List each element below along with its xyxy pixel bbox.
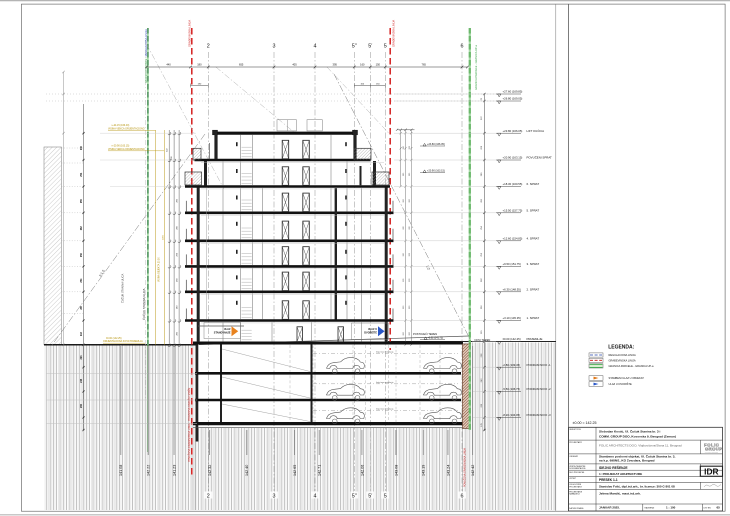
svg-text:VISINA OBJEKTA 20.90: VISINA OBJEKTA 20.90 xyxy=(158,257,161,282)
svg-text:3. SPRAT: 3. SPRAT xyxy=(527,262,540,266)
svg-text:282: 282 xyxy=(80,226,83,231)
svg-text:142.42: 142.42 xyxy=(471,465,475,476)
svg-text:5′′: 5′′ xyxy=(352,493,357,499)
svg-text:±0.00 = 142.25: ±0.00 = 142.25 xyxy=(573,421,597,425)
svg-text:GRANICA PARCELE - GRANICA UP-a: GRANICA PARCELE - GRANICA UP-a xyxy=(609,364,654,368)
svg-text:NOVI TEREN: NOVI TEREN xyxy=(475,338,491,342)
svg-text:Stanislav Folić, dipl.inž.arh.: Stanislav Folić, dipl.inž.arh., br. lice… xyxy=(599,484,675,488)
svg-text:1 : 100: 1 : 100 xyxy=(666,506,676,510)
svg-text:4: 4 xyxy=(314,493,317,499)
svg-text:+6.30 (148.55): +6.30 (148.55) xyxy=(503,288,521,292)
svg-text:65: 65 xyxy=(717,506,721,510)
svg-text:180: 180 xyxy=(197,63,202,67)
svg-text:142.65: 142.65 xyxy=(293,465,297,476)
svg-text:REGULACIONA LINIJA: REGULACIONA LINIJA xyxy=(609,353,637,357)
svg-text:255: 255 xyxy=(80,198,83,203)
svg-text:LIST BR.: LIST BR. xyxy=(704,507,712,509)
svg-text:STAMBENI ULAZ U OBJEKAT: STAMBENI ULAZ U OBJEKAT xyxy=(609,376,645,380)
svg-text:POVUČENA GRAĐEVINSKA LINIJA -: POVUČENA GRAĐEVINSKA LINIJA - PODZEMNA G… xyxy=(188,387,191,462)
svg-text:LIFT KUĆICA: LIFT KUĆICA xyxy=(527,128,545,133)
svg-text:RAZMERA:: RAZMERA: xyxy=(645,506,655,509)
svg-text:150: 150 xyxy=(376,63,381,67)
svg-text:142.32: 142.32 xyxy=(208,465,212,476)
svg-text:GROUP: GROUP xyxy=(705,447,722,452)
svg-text:254: 254 xyxy=(80,278,83,283)
svg-text:+3.10 (145.35): +3.10 (145.35) xyxy=(503,316,521,320)
svg-text:5: 5 xyxy=(384,44,387,50)
svg-text:143.08: 143.08 xyxy=(394,465,398,476)
svg-text:OBJEKAT:: OBJEKAT: xyxy=(569,455,578,458)
svg-text:Slobodan Kostić, Ul. Čučuk Sta: Slobodan Kostić, Ul. Čučuk Stanina br. 3… xyxy=(599,429,661,434)
svg-text:linija trase instalacija: linija trase instalacija xyxy=(376,408,394,411)
svg-text:PRIZEMLJE: PRIZEMLJE xyxy=(527,337,543,341)
svg-text:VISINA VENCA ORIJENTACIONO: VISINA VENCA ORIJENTACIONO xyxy=(108,127,145,130)
svg-text:linija trase instalacija: linija trase instalacija xyxy=(376,351,394,354)
svg-text:280: 280 xyxy=(80,145,83,150)
svg-text:2: 2 xyxy=(207,44,210,50)
svg-text:142.40: 142.40 xyxy=(245,465,249,476)
svg-text:COMM. GROUP DOO, Kosovska 9, B: COMM. GROUP DOO, Kosovska 9, Beograd (Ze… xyxy=(599,434,676,438)
svg-text:243: 243 xyxy=(80,331,83,336)
svg-text:linija trase instalacija: linija trase instalacija xyxy=(376,381,394,384)
svg-text:405: 405 xyxy=(292,63,297,67)
svg-text:254: 254 xyxy=(80,172,83,177)
svg-text:GRANICA PARCELE - REGULACIONA: GRANICA PARCELE - REGULACIONA LINIJA xyxy=(144,29,148,83)
svg-text:VISINA VENCA ORIJENTACIONO: VISINA VENCA ORIJENTACIONO xyxy=(108,148,145,151)
svg-text:POVUČENA GRAĐEVINSKA LINIJA: POVUČENA GRAĐEVINSKA LINIJA xyxy=(463,448,466,487)
svg-text:+23.80 (166.05): +23.80 (166.05) xyxy=(427,143,445,146)
svg-text:+20.90 (163.15): +20.90 (163.15) xyxy=(503,156,523,160)
svg-text:GRAĐEVINSKA LINIJA: GRAĐEVINSKA LINIJA xyxy=(187,20,191,47)
svg-text:2. SPRAT: 2. SPRAT xyxy=(527,288,540,292)
svg-text:PROJEKTANT:: PROJEKTANT: xyxy=(569,486,582,489)
svg-text:PODRUM NIVO -2: PODRUM NIVO -2 xyxy=(527,387,551,391)
svg-text:1: PROJEKAT ARHITEKTURE: 1: PROJEKAT ARHITEKTURE xyxy=(599,472,642,476)
svg-text:3: 3 xyxy=(273,493,276,499)
svg-text:2: 2 xyxy=(207,493,210,499)
svg-text:5′′: 5′′ xyxy=(352,44,357,50)
svg-text:5: 5 xyxy=(384,493,387,499)
svg-text:395: 395 xyxy=(333,63,338,67)
svg-text:143.19: 143.19 xyxy=(422,465,426,476)
svg-text:+12.60 (154.85): +12.60 (154.85) xyxy=(503,237,523,241)
svg-text:5′: 5′ xyxy=(368,44,372,50)
svg-text:POVUČENI SPRAT: POVUČENI SPRAT xyxy=(527,155,553,160)
svg-text:+20.90 (163.15): +20.90 (163.15) xyxy=(427,169,445,172)
svg-text:+15.50 (157.75): +15.50 (157.75) xyxy=(503,209,523,213)
svg-text:-8.20 (134.05): -8.20 (134.05) xyxy=(503,413,521,417)
svg-text:PODRUM NIVO -1: PODRUM NIVO -1 xyxy=(527,363,551,367)
svg-text:142.71: 142.71 xyxy=(318,465,322,476)
svg-text:LEGENDA:: LEGENDA: xyxy=(608,345,634,351)
svg-text:-0.52 (141.73): -0.52 (141.73) xyxy=(428,336,443,339)
svg-text:655: 655 xyxy=(239,63,244,67)
svg-text:DATUM IZRADE:: DATUM IZRADE: xyxy=(569,507,584,510)
svg-text:4: 4 xyxy=(314,44,317,50)
svg-text:+23.80 (166.05): +23.80 (166.05) xyxy=(503,129,523,133)
svg-text:260: 260 xyxy=(80,403,83,408)
svg-text:GRAĐEVINSKA LINIJA: GRAĐEVINSKA LINIJA xyxy=(609,358,636,362)
svg-text:-5.50 (136.75): -5.50 (136.75) xyxy=(503,387,521,391)
svg-text:287: 287 xyxy=(80,305,83,310)
svg-text:141.23: 141.23 xyxy=(172,465,176,476)
svg-text:DVORIŠTE: DVORIŠTE xyxy=(364,331,377,334)
svg-text:765: 765 xyxy=(422,63,427,67)
svg-text:na k.p. 698N/1, KO Zvezdara, B: na k.p. 698N/1, KO Zvezdara, Beograd xyxy=(599,459,655,463)
svg-text:5′: 5′ xyxy=(368,493,372,499)
svg-text:6. SPRAT: 6. SPRAT xyxy=(527,182,540,186)
svg-text:GRAĐEVINSKA LINIJA: GRAĐEVINSKA LINIJA xyxy=(392,20,396,47)
svg-text:STANOVANJE: STANOVANJE xyxy=(214,331,231,334)
svg-text:PODRUM NIVO -3: PODRUM NIVO -3 xyxy=(527,413,551,417)
svg-text:IDEJNO REŠENJE: IDEJNO REŠENJE xyxy=(599,465,628,470)
svg-text:Jelena Mandić, mast.inž.arh.: Jelena Mandić, mast.inž.arh. xyxy=(599,492,641,496)
svg-text:223: 223 xyxy=(80,355,83,360)
svg-text:-2.80 (139.45): -2.80 (139.45) xyxy=(503,363,521,367)
svg-text:Stambeno poslovni objekat, Ul.: Stambeno poslovni objekat, Ul. Čučuk Sta… xyxy=(599,453,675,458)
svg-text:ORIJENTACIONA KOTA PRIZEMLJA: ORIJENTACIONA KOTA PRIZEMLJA xyxy=(103,340,143,343)
svg-text:DOKUMENTACIJE:: DOKUMENTACIJE: xyxy=(569,467,586,470)
svg-text:142.22: 142.22 xyxy=(147,465,151,476)
svg-text:±0.00 (142.25): ±0.00 (142.25) xyxy=(503,337,521,341)
svg-text:+27.60 (169.85): +27.60 (169.85) xyxy=(503,90,523,94)
svg-text:141.08: 141.08 xyxy=(119,465,123,476)
svg-text:IDR: IDR xyxy=(704,467,718,477)
svg-text:JANUAR 2025.: JANUAR 2025. xyxy=(599,506,620,510)
svg-text:+18.30 (160.55): +18.30 (160.55) xyxy=(503,182,523,186)
svg-text:FOLIC ARCHITECTS DOO, Vlajkovi: FOLIC ARCHITECTS DOO, Vlajkovićeva/Slana… xyxy=(599,444,682,448)
svg-text:160: 160 xyxy=(360,63,365,67)
svg-text:DEO PROJEKTA:: DEO PROJEKTA: xyxy=(569,471,584,474)
svg-text:6: 6 xyxy=(461,493,464,499)
svg-text:PRESEK 1-1: PRESEK 1-1 xyxy=(599,478,618,482)
svg-text:245: 245 xyxy=(80,378,83,383)
svg-text:1. SPRAT: 1. SPRAT xyxy=(527,316,540,320)
svg-text:CRTEŽ:: CRTEŽ: xyxy=(569,477,576,480)
svg-text:PROJEKTANT:: PROJEKTANT: xyxy=(569,441,582,444)
svg-text:SARADNICI:: SARADNICI: xyxy=(569,493,580,496)
svg-text:5. SPRAT: 5. SPRAT xyxy=(527,209,540,213)
svg-text:3: 3 xyxy=(273,44,276,50)
svg-text:142.06: 142.06 xyxy=(360,465,364,476)
svg-text:ČUČUK STANINA ULICA: ČUČUK STANINA ULICA xyxy=(141,288,146,320)
svg-text:256: 256 xyxy=(80,252,83,257)
svg-text:4. SPRAT: 4. SPRAT xyxy=(527,237,540,241)
svg-text:6: 6 xyxy=(461,44,464,50)
svg-text:+9.50 (151.75): +9.50 (151.75) xyxy=(503,262,521,266)
svg-text:440: 440 xyxy=(166,63,171,67)
svg-text:+26.80 (169.05): +26.80 (169.05) xyxy=(503,97,523,101)
svg-text:GRANICA PARCELE - GRANICA UP-a: GRANICA PARCELE - GRANICA UP-a xyxy=(474,45,478,90)
svg-text:143.24: 143.24 xyxy=(446,465,450,476)
svg-text:INVESTITOR:: INVESTITOR: xyxy=(569,429,581,431)
